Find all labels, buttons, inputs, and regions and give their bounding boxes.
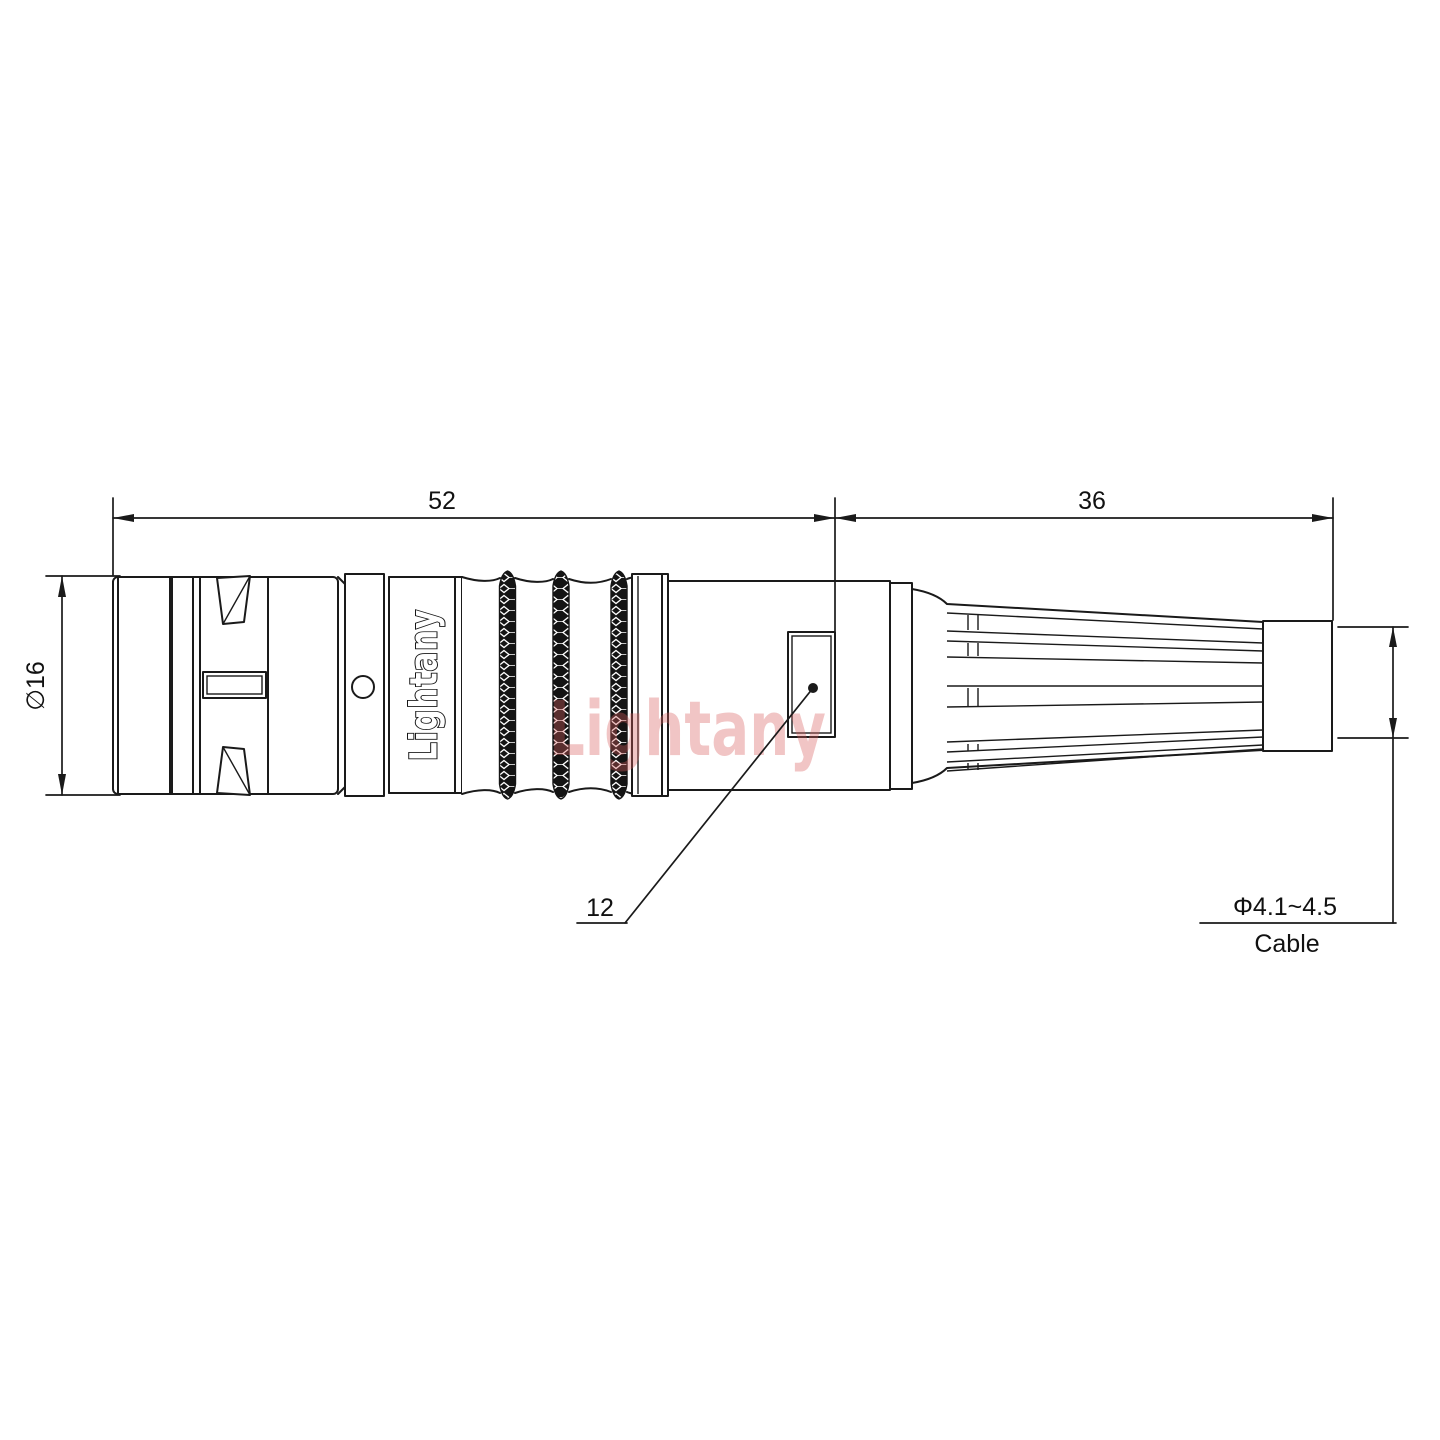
dimcable-arrow-bottom	[1389, 718, 1397, 738]
strain-relief-boot	[890, 583, 1332, 789]
boot-base-ring	[890, 583, 912, 789]
watermark: Lightany	[549, 685, 826, 774]
latch-tab-top-face	[217, 576, 250, 624]
drawing-canvas: Lightany	[0, 0, 1440, 1440]
dim36-arrow-right	[1312, 514, 1333, 522]
index-hole	[352, 676, 374, 698]
collar-ring-front	[345, 574, 389, 796]
latch-tab-top	[217, 576, 250, 624]
dim16-arrow-bottom	[58, 774, 66, 795]
label-section: Lightany	[389, 577, 462, 793]
leader12-text: 12	[586, 894, 614, 922]
dimcable-label-text: Cable	[1254, 930, 1319, 958]
dim36-arrow-left	[835, 514, 856, 522]
dim52-arrow-left	[113, 514, 134, 522]
body-label: Lightany	[402, 609, 445, 761]
latch-tab-bottom-face	[217, 747, 250, 795]
dim16-arrow-top	[58, 576, 66, 597]
dimcable-diameter-text: Φ4.1~4.5	[1233, 893, 1337, 921]
knurl-band-1	[500, 571, 516, 799]
dim16-text: ∅16	[22, 661, 50, 711]
dim52-text: 52	[428, 487, 456, 515]
dim-body-diameter: ∅16	[22, 576, 120, 795]
latch-tab-bottom	[217, 747, 250, 795]
cable-ferrule	[1263, 621, 1332, 751]
dim36-text: 36	[1078, 487, 1106, 515]
front-sleeve	[113, 576, 345, 795]
front-sleeve-chamfer-edge	[338, 577, 345, 794]
latch-middle-slot	[203, 672, 266, 698]
dim52-arrow-right	[814, 514, 835, 522]
technical-drawing: Lightany	[0, 0, 1440, 1440]
dimcable-arrow-top	[1389, 627, 1397, 647]
